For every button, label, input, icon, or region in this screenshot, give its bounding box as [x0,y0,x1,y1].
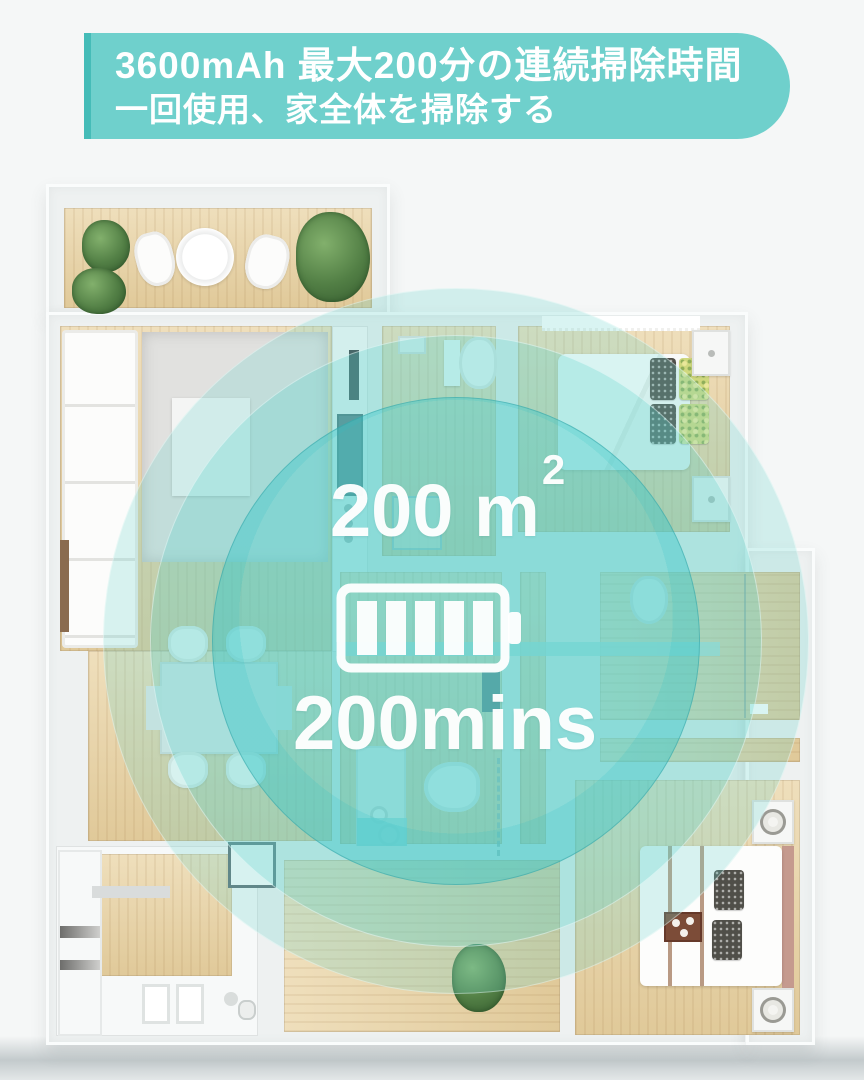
kitchen-counter [58,850,102,1036]
headboard [782,846,794,988]
battery-icon [336,583,526,675]
tray-cup [686,917,694,925]
nightstand [692,330,730,376]
door [92,886,170,898]
header-banner: 3600mAh 最大200分の連続掃除時間 一回使用、家全体を掃除する [84,33,790,139]
area-unit: m [474,469,540,552]
tray-cup [680,929,688,937]
counter-shelf [60,926,100,938]
lamp [760,997,786,1023]
product-infographic: 200 m2 200mins 3600mAh 最大200分の連続掃除時間 一回使… [0,0,864,1080]
banner-line-1: 3600mAh 最大200分の連続掃除時間 [115,42,790,89]
area-stat: 200 m2 [330,468,563,553]
round-table [176,228,234,286]
area-exponent: 2 [542,446,565,493]
counter-shelf [60,960,100,970]
banner-line-2: 一回使用、家全体を掃除する [115,89,790,130]
tray-cup [672,919,680,927]
nightstand [752,988,794,1032]
nightstand-knob [708,350,715,357]
sideboard [60,540,69,632]
runtime-stat: 200mins [293,680,597,767]
pillows [712,920,742,960]
potted-plant [82,220,130,272]
potted-plant [72,268,126,314]
kitchen-sink [176,984,204,1024]
potted-plant [296,212,370,302]
area-value: 200 [330,469,453,552]
kitchen-sink [142,984,170,1024]
faucet [224,992,238,1006]
faucet [238,1000,256,1020]
